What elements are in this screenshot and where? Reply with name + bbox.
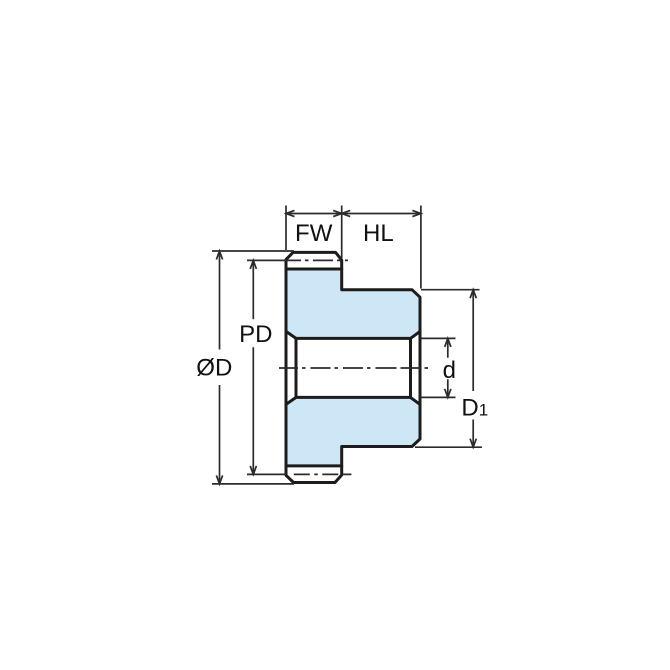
svg-text:HL: HL — [363, 220, 394, 247]
svg-text:PD: PD — [239, 321, 272, 348]
svg-text:FW: FW — [295, 220, 333, 247]
svg-text:ØD: ØD — [196, 355, 232, 382]
svg-text:d: d — [443, 357, 456, 384]
